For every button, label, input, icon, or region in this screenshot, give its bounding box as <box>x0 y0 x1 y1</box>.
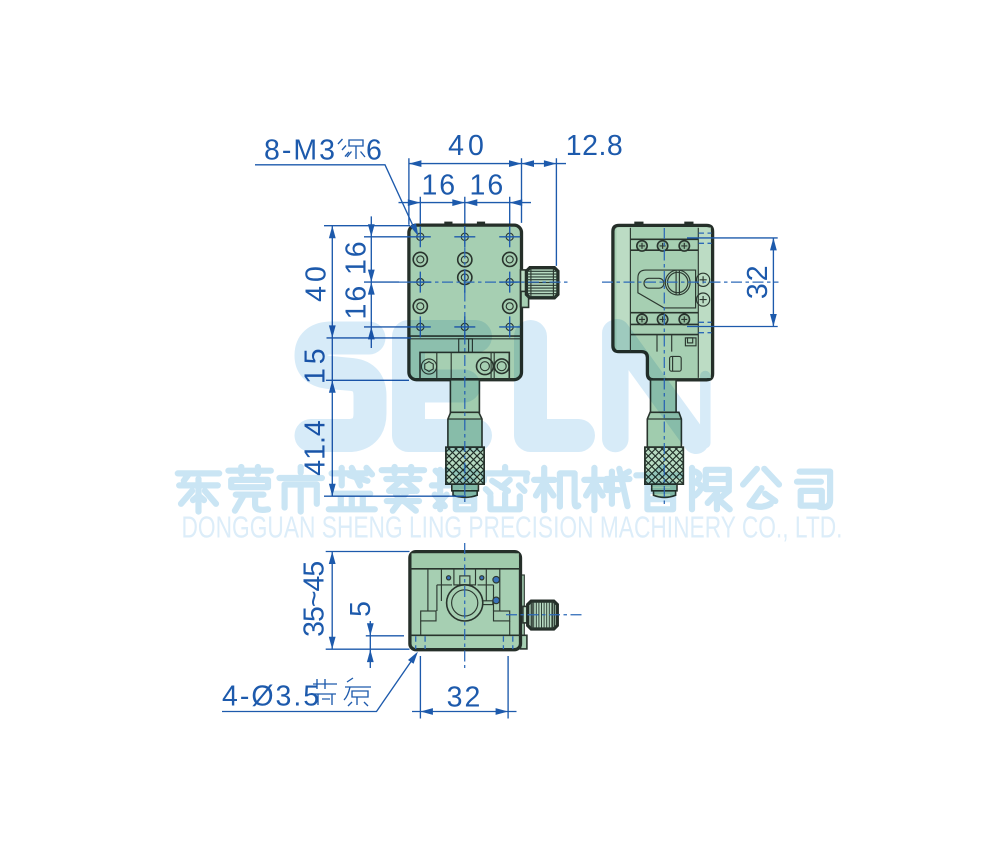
svg-text:12.8: 12.8 <box>566 130 623 162</box>
svg-text:6: 6 <box>366 135 384 167</box>
svg-text:32: 32 <box>447 681 483 713</box>
svg-text:16: 16 <box>421 169 457 201</box>
svg-text:16: 16 <box>340 284 372 320</box>
svg-text:40: 40 <box>301 262 333 302</box>
svg-text:16: 16 <box>340 239 372 275</box>
svg-text:4-Ø3.5: 4-Ø3.5 <box>222 681 321 713</box>
svg-text:35~45: 35~45 <box>298 562 330 637</box>
svg-text:8-M3: 8-M3 <box>264 135 337 167</box>
svg-text:32: 32 <box>742 263 774 299</box>
svg-text:40: 40 <box>448 130 488 162</box>
svg-text:5: 5 <box>345 599 377 617</box>
svg-text:16: 16 <box>470 169 506 201</box>
svg-text:DONGGUAN SHENG LING PRECISION: DONGGUAN SHENG LING PRECISION MACHINERY … <box>182 511 843 545</box>
